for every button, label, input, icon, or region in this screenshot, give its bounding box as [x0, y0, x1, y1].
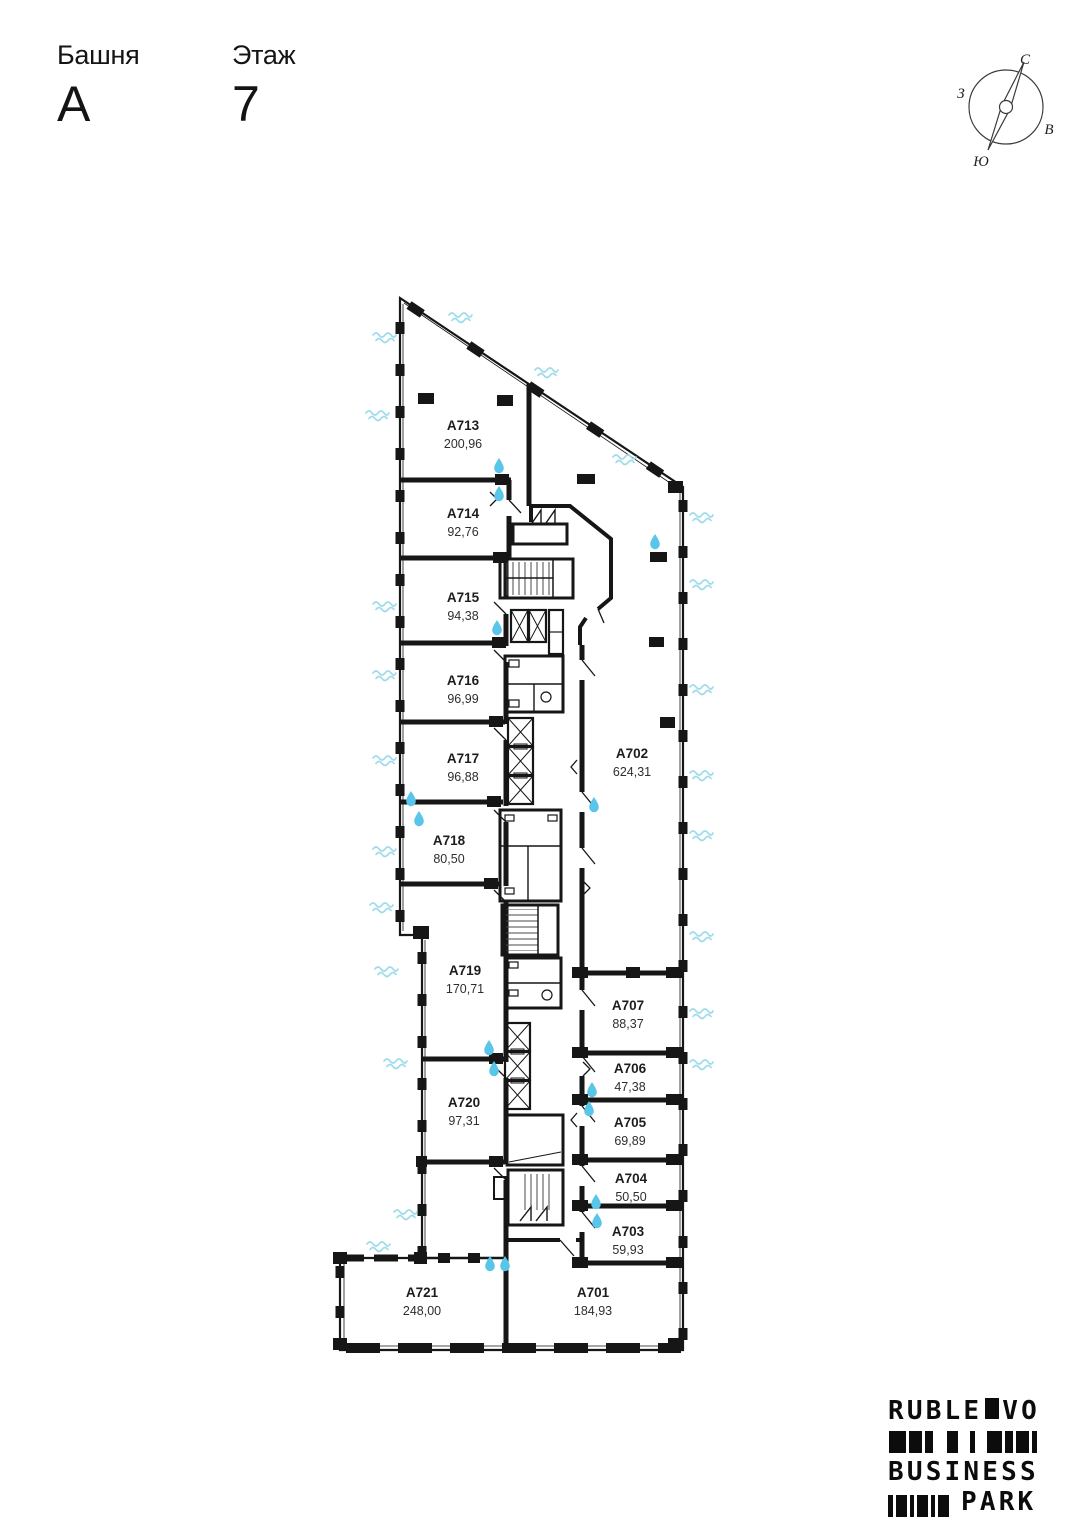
logo-barcode-row-2: [888, 1493, 949, 1517]
water-drop-icon: [592, 1213, 602, 1228]
room-area: 248,00: [403, 1304, 441, 1318]
hvac-wave-icon: [690, 932, 713, 942]
water-drop-icon: [406, 791, 416, 806]
room-label-a716: A716 96,99: [447, 673, 480, 706]
room-label-a707: A707 88,37: [612, 998, 644, 1031]
water-drop-icon: [484, 1040, 494, 1055]
room-label-a704: A704 50,50: [615, 1171, 648, 1204]
wc-2: [500, 810, 561, 901]
room-id: A713: [447, 418, 480, 433]
elevator-bank-1: [511, 610, 563, 654]
floor-plan-page: Башня А Этаж 7 С В Ю З: [0, 0, 1086, 1536]
room-label-a705: A705 69,89: [614, 1115, 647, 1148]
hvac-wave-icon: [375, 967, 398, 977]
hvac-wave-icon: [690, 831, 713, 841]
hvac-wave-icon: [370, 903, 393, 913]
room-label-a718: A718 80,50: [433, 833, 466, 866]
room-area: 88,37: [612, 1017, 643, 1031]
water-drop-icon: [650, 534, 660, 549]
room-area: 96,99: [447, 692, 478, 706]
room-id: A701: [577, 1285, 610, 1300]
floor-plan-drawing: A713 200,96 A714 92,76 A715 94,38 A716 9…: [0, 0, 1086, 1536]
hvac-wave-icon: [690, 580, 713, 590]
door-chevrons-top: [532, 510, 555, 523]
hvac-wave-icon: [449, 313, 472, 323]
room-label-a713: A713 200,96: [444, 418, 482, 451]
logo-block-icon: [985, 1398, 999, 1419]
room-id: A702: [616, 746, 648, 761]
accessible-wc-symbol: [541, 692, 551, 702]
room-label-a702: A702 624,31: [613, 746, 651, 779]
water-drop-icon: [591, 1194, 601, 1209]
hvac-wave-icon: [690, 1009, 713, 1019]
stair-treads-2: [506, 909, 538, 951]
room-area: 200,96: [444, 437, 482, 451]
tech-room: [507, 1115, 563, 1165]
room-id: A717: [447, 751, 479, 766]
room-id: A715: [447, 590, 480, 605]
logo-word-ruble: RUBLE: [888, 1396, 982, 1426]
room-area: 59,93: [612, 1243, 643, 1257]
hvac-wave-icon: [373, 756, 396, 766]
hvac-wave-icon: [690, 771, 713, 781]
room-label-a701: A701 184,93: [574, 1285, 612, 1318]
hvac-wave-icon: [373, 602, 396, 612]
room-area: 97,31: [448, 1114, 479, 1128]
room-area: 624,31: [613, 765, 651, 779]
wc-1: [505, 656, 563, 712]
logo-line-2: BUSINESS: [888, 1457, 1060, 1487]
room-id: A718: [433, 833, 466, 848]
room-area: 69,89: [614, 1134, 645, 1148]
room-area: 47,38: [614, 1080, 645, 1094]
room-label-a720: A720 97,31: [448, 1095, 480, 1128]
logo-barcode-row-1: [889, 1429, 1060, 1453]
room-label-a703: A703 59,93: [612, 1224, 645, 1257]
room-label-a719: A719 170,71: [446, 963, 484, 996]
wc-3: [505, 958, 561, 1008]
logo-word-park: PARK: [961, 1487, 1036, 1517]
logo-word-vo: VO: [1002, 1396, 1040, 1426]
water-drop-icon: [414, 811, 424, 826]
shaft-room: [513, 524, 567, 544]
water-drop-icon: [492, 620, 502, 635]
hvac-wave-icon: [373, 333, 396, 343]
hvac-wave-icon: [373, 671, 396, 681]
room-id: A704: [615, 1171, 648, 1186]
room-id: A714: [447, 506, 480, 521]
elevator-bank-2: [508, 718, 533, 804]
room-id: A703: [612, 1224, 645, 1239]
room-label-a706: A706 47,38: [614, 1061, 647, 1094]
hvac-wave-icon: [690, 513, 713, 523]
hvac-wave-icon: [384, 1059, 407, 1069]
room-id: A706: [614, 1061, 647, 1076]
room-area: 170,71: [446, 982, 484, 996]
room-id: A719: [449, 963, 481, 978]
hvac-wave-icon: [394, 1210, 417, 1220]
room-area: 94,38: [447, 609, 478, 623]
hvac-wave-icon: [367, 1242, 390, 1252]
room-area: 92,76: [447, 525, 478, 539]
hvac-wave-icon: [373, 847, 396, 857]
room-area: 50,50: [615, 1190, 646, 1204]
water-drop-icon: [587, 1082, 597, 1097]
room-label-a715: A715 94,38: [447, 590, 480, 623]
room-id: A716: [447, 673, 480, 688]
room-id: A720: [448, 1095, 480, 1110]
room-id: A707: [612, 998, 644, 1013]
elevator-bank-3: [505, 1023, 530, 1109]
logo-line-1: RUBLEVO: [888, 1396, 1060, 1426]
logo-rublevo-business-park: RUBLEVO BUSINESS PARK: [888, 1396, 1060, 1517]
accessible-wc-symbol-2: [542, 990, 552, 1000]
hvac-wave-icon: [535, 368, 558, 378]
logo-word-business: BUSINESS: [888, 1457, 1039, 1487]
room-area: 184,93: [574, 1304, 612, 1318]
room-area: 80,50: [433, 852, 464, 866]
logo-line-3: PARK: [888, 1487, 1060, 1517]
room-label-a714: A714 92,76: [447, 506, 480, 539]
hvac-wave-icon: [366, 411, 389, 421]
water-drop-icon: [589, 797, 599, 812]
hvac-wave-icons: [366, 313, 713, 1252]
water-drop-icon: [494, 458, 504, 473]
water-drop-icon: [494, 486, 504, 501]
room-label-a721: A721 248,00: [403, 1285, 441, 1318]
room-area: 96,88: [447, 770, 478, 784]
hvac-wave-icon: [613, 455, 636, 465]
hvac-wave-icon: [690, 1060, 713, 1070]
room-label-a717: A717 96,88: [447, 751, 479, 784]
hvac-wave-icon: [690, 685, 713, 695]
room-id: A705: [614, 1115, 647, 1130]
room-id: A721: [406, 1285, 439, 1300]
stair-treads-3: [523, 1174, 553, 1210]
